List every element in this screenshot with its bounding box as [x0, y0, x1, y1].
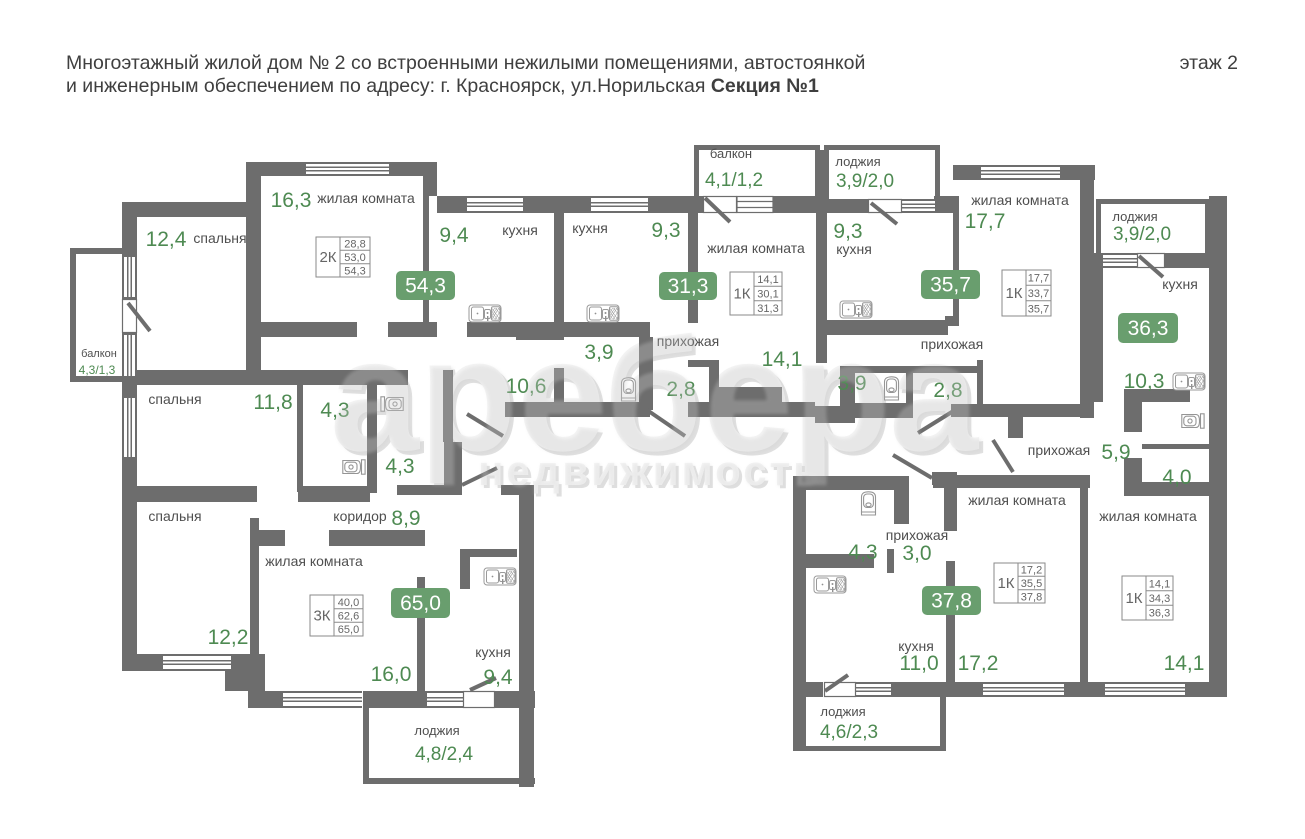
svg-text:14,1: 14,1	[1149, 578, 1170, 590]
svg-text:34,3: 34,3	[1149, 593, 1170, 605]
svg-text:17,7: 17,7	[965, 210, 1006, 233]
svg-text:37,8: 37,8	[931, 590, 972, 613]
svg-text:65,0: 65,0	[400, 592, 441, 615]
svg-text:жилая комната: жилая комната	[317, 190, 415, 206]
svg-text:кухня: кухня	[475, 644, 511, 660]
svg-text:3,9/2,0: 3,9/2,0	[1113, 224, 1171, 245]
svg-text:кухня: кухня	[572, 220, 608, 236]
svg-text:3,9/2,0: 3,9/2,0	[836, 171, 894, 192]
svg-text:65,0: 65,0	[338, 624, 359, 636]
svg-text:28,8: 28,8	[344, 239, 365, 251]
svg-text:12,4: 12,4	[146, 228, 187, 251]
svg-text:14,1: 14,1	[757, 274, 778, 286]
svg-text:9,4: 9,4	[483, 666, 513, 689]
svg-text:лоджия: лоджия	[820, 704, 865, 719]
svg-text:балкон: балкон	[710, 146, 752, 161]
svg-text:2К: 2К	[319, 249, 336, 266]
svg-text:4,3: 4,3	[848, 541, 877, 564]
svg-text:11,0: 11,0	[899, 652, 938, 675]
svg-text:10,3: 10,3	[1124, 370, 1165, 393]
svg-text:1К: 1К	[997, 575, 1014, 592]
svg-text:9,4: 9,4	[439, 224, 469, 247]
svg-text:кухня: кухня	[1162, 276, 1198, 292]
svg-text:17,7: 17,7	[1028, 273, 1049, 285]
svg-text:спальня: спальня	[148, 508, 201, 524]
svg-text:и инженерным обеспечением по а: и инженерным обеспечением по адресу: г. …	[66, 75, 819, 97]
svg-text:12,2: 12,2	[208, 626, 249, 649]
svg-text:35,7: 35,7	[930, 274, 971, 297]
svg-text:жилая комната: жилая комната	[1099, 508, 1197, 524]
svg-text:4,3/1,3: 4,3/1,3	[79, 363, 116, 377]
svg-text:спальня: спальня	[193, 230, 246, 246]
svg-text:62,6: 62,6	[338, 611, 359, 623]
svg-text:лоджия: лоджия	[414, 723, 459, 738]
svg-text:лоджия: лоджия	[835, 154, 880, 169]
svg-text:35,7: 35,7	[1028, 303, 1049, 315]
svg-text:31,3: 31,3	[668, 275, 709, 298]
svg-text:5,9: 5,9	[1101, 441, 1130, 464]
svg-text:балкон: балкон	[81, 348, 117, 360]
svg-text:8,9: 8,9	[391, 507, 420, 530]
svg-text:4,8/2,4: 4,8/2,4	[415, 744, 474, 765]
svg-text:4,1/1,2: 4,1/1,2	[705, 170, 763, 191]
svg-text:40,0: 40,0	[338, 597, 359, 609]
svg-text:17,2: 17,2	[1021, 565, 1042, 577]
svg-text:спальня: спальня	[148, 391, 201, 407]
svg-text:36,3: 36,3	[1128, 317, 1169, 340]
svg-text:35,5: 35,5	[1021, 578, 1042, 590]
svg-text:4,6/2,3: 4,6/2,3	[820, 722, 878, 743]
svg-text:прихожая: прихожая	[886, 527, 948, 543]
svg-text:17,2: 17,2	[958, 652, 999, 675]
svg-text:3К: 3К	[313, 608, 330, 625]
svg-text:11,8: 11,8	[253, 391, 292, 414]
svg-text:54,3: 54,3	[405, 275, 446, 298]
svg-text:33,7: 33,7	[1028, 288, 1049, 300]
svg-text:16,3: 16,3	[271, 189, 312, 212]
svg-text:недвижимость: недвижимость	[479, 448, 823, 495]
svg-text:кухня: кухня	[502, 222, 538, 238]
svg-text:коридор: коридор	[333, 508, 387, 524]
svg-text:16,0: 16,0	[371, 663, 412, 686]
svg-text:54,3: 54,3	[344, 265, 365, 277]
svg-text:прихожая: прихожая	[1028, 442, 1090, 458]
svg-text:3,0: 3,0	[902, 542, 931, 565]
svg-text:жилая комната: жилая комната	[265, 553, 363, 569]
svg-text:4,0: 4,0	[1162, 466, 1191, 489]
svg-text:жилая комната: жилая комната	[707, 240, 805, 256]
svg-text:1К: 1К	[733, 286, 750, 303]
svg-text:Многоэтажный жилой дом № 2 со: Многоэтажный жилой дом № 2 со встроенным…	[66, 52, 865, 74]
svg-text:30,1: 30,1	[757, 289, 778, 301]
svg-text:жилая комната: жилая комната	[971, 192, 1069, 208]
svg-text:14,1: 14,1	[1164, 652, 1205, 675]
svg-text:53,0: 53,0	[344, 252, 365, 264]
svg-text:лоджия: лоджия	[1112, 209, 1157, 224]
svg-text:9,3: 9,3	[651, 219, 680, 242]
svg-text:1К: 1К	[1125, 590, 1142, 607]
svg-text:1К: 1К	[1005, 285, 1022, 302]
svg-text:кухня: кухня	[836, 241, 872, 257]
svg-text:36,3: 36,3	[1149, 608, 1170, 620]
svg-text:37,8: 37,8	[1021, 591, 1042, 603]
svg-text:этаж 2: этаж 2	[1180, 52, 1238, 74]
svg-text:9,3: 9,3	[833, 220, 862, 243]
svg-text:жилая комната: жилая комната	[968, 492, 1066, 508]
